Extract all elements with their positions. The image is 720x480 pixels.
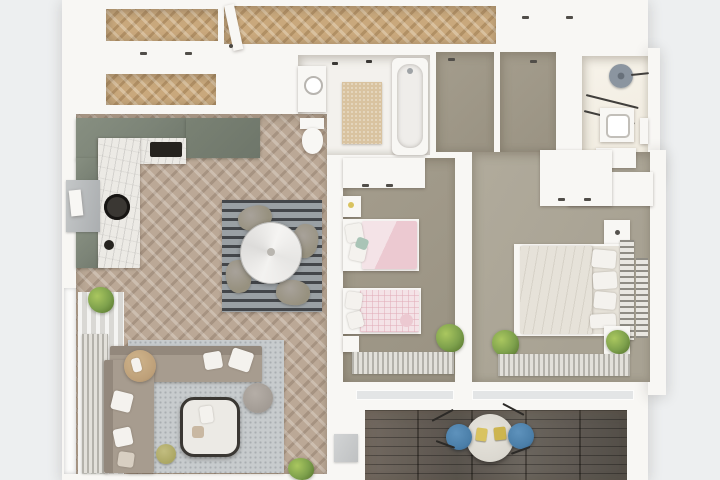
master-duvet xyxy=(520,246,592,334)
rain-shower-head xyxy=(609,64,633,88)
towel-hook xyxy=(366,60,372,63)
master-window-rug xyxy=(498,354,630,376)
kids-bed-1-blanket xyxy=(362,221,417,269)
kids-wardrobe xyxy=(343,158,425,188)
closet-handle xyxy=(530,60,537,63)
closet-handle xyxy=(566,16,573,19)
bathroom-basin xyxy=(304,76,323,95)
toilet-bowl xyxy=(302,128,323,154)
corridor-niche-2-floor xyxy=(500,52,556,152)
balcony-sill-unit xyxy=(334,434,358,462)
master-plant-right xyxy=(606,330,630,354)
shower-room-basin xyxy=(606,114,630,138)
closet-handle xyxy=(448,58,455,61)
master-pillow xyxy=(593,291,617,310)
bathtub-faucet xyxy=(407,68,413,74)
kids-bed-2-pillow xyxy=(345,291,363,310)
kids-bed-2-round-pillow xyxy=(400,314,413,327)
closet-handle xyxy=(522,16,529,19)
master-headboard-slats xyxy=(620,240,634,340)
kids-wardrobe-handle xyxy=(386,184,393,187)
kitchen-sink xyxy=(104,194,130,220)
closet-niche-1-floor xyxy=(106,9,218,41)
master-pillow xyxy=(592,271,617,290)
master-wardrobe xyxy=(540,150,612,206)
kids-wardrobe-handle xyxy=(362,184,369,187)
master-wall-ladder-rack xyxy=(636,258,648,338)
balcony-seat-cushion xyxy=(475,427,488,441)
kids-window-rug xyxy=(352,352,454,374)
kids-nightstand-bottom xyxy=(343,336,359,352)
small-olive-pouf xyxy=(156,444,176,464)
sofa-pillow xyxy=(112,426,133,447)
master-window xyxy=(472,390,634,400)
coffee-table-paper xyxy=(199,405,214,424)
kids-plant xyxy=(436,324,464,352)
coffee-table-tray xyxy=(192,426,204,438)
balcony-table xyxy=(466,414,514,462)
towel-hook xyxy=(332,62,338,65)
closet-handle xyxy=(140,52,147,55)
kids-window xyxy=(356,390,454,400)
door-handle xyxy=(229,44,233,48)
entry-hall-floor xyxy=(224,6,496,44)
shower-room-shelf xyxy=(640,118,648,144)
balcony-chair-right xyxy=(508,423,534,449)
corridor-niche-1-floor xyxy=(436,52,494,152)
plant-living-bottom xyxy=(288,458,314,480)
master-plant-left xyxy=(492,330,519,357)
closet-handle xyxy=(185,52,192,55)
sofa-pillow xyxy=(203,351,224,371)
floorplan-render xyxy=(0,0,720,480)
closet-niche-2-floor xyxy=(106,74,216,105)
bathtub-basin xyxy=(397,64,423,148)
nightstand-trinket xyxy=(348,202,354,208)
cooktop xyxy=(150,142,182,157)
framed-art xyxy=(69,189,84,216)
living-window xyxy=(64,288,76,474)
plant-living-left xyxy=(88,287,114,313)
kitchen-cabinet-right-block xyxy=(186,118,260,158)
master-wardrobe-handle xyxy=(584,198,591,201)
balcony-seat-cushion xyxy=(493,426,506,440)
master-wardrobe-handle xyxy=(558,198,565,201)
table-vase xyxy=(267,248,275,256)
master-pillow xyxy=(591,249,616,269)
nightstand-knob xyxy=(615,230,620,235)
sofa-pillow-beige xyxy=(117,451,135,468)
bath-mat xyxy=(342,82,382,144)
round-pouf xyxy=(243,383,273,413)
kitchen-faucet xyxy=(104,240,114,250)
